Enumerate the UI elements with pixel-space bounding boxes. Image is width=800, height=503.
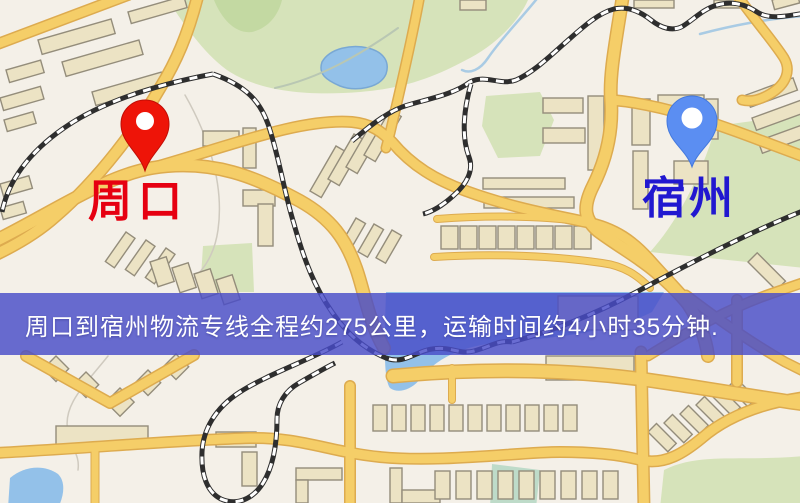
route-info-banner: 周口到宿州物流专线全程约275公里，运输时间约4小时35分钟.: [0, 293, 800, 355]
map-canvas[interactable]: [0, 0, 800, 503]
origin-city-label: 周口: [88, 180, 188, 224]
destination-city-label: 宿州: [642, 177, 736, 221]
map-viewport: 周口 宿州 周口到宿州物流专线全程约275公里，运输时间约4小时35分钟.: [0, 0, 800, 503]
route-info-text: 周口到宿州物流专线全程约275公里，运输时间约4小时35分钟.: [25, 307, 719, 342]
